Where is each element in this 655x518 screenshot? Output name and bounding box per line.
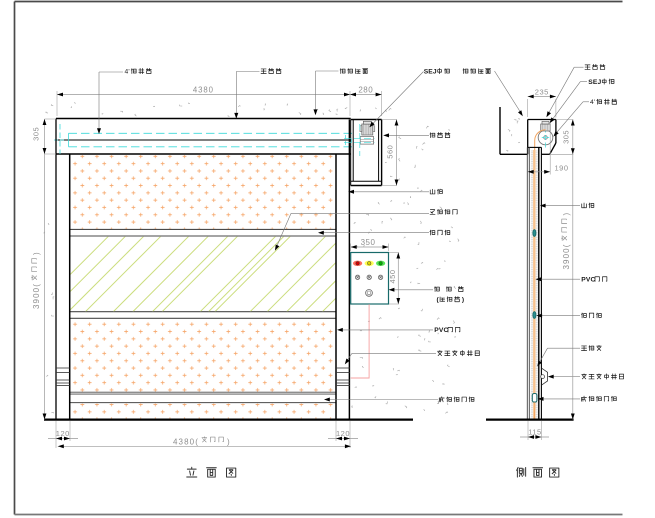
- svg-text:4380(: 4380(: [173, 437, 199, 446]
- svg-text:305: 305: [32, 127, 41, 141]
- svg-text:): ): [32, 252, 41, 255]
- svg-text:560: 560: [386, 145, 395, 159]
- svg-text:120: 120: [336, 429, 350, 438]
- svg-text:235: 235: [535, 87, 549, 96]
- svg-text:): ): [227, 437, 230, 446]
- svg-text:4': 4': [125, 69, 130, 76]
- svg-text:SEJ: SEJ: [424, 69, 437, 76]
- svg-text:280: 280: [358, 85, 373, 94]
- svg-text:PVC: PVC: [434, 327, 448, 334]
- svg-text:305: 305: [561, 130, 570, 144]
- svg-text:3900(: 3900(: [562, 244, 571, 270]
- svg-text:PVC: PVC: [581, 277, 595, 284]
- svg-text:SEJ: SEJ: [588, 79, 601, 86]
- svg-text:3900(: 3900(: [32, 283, 41, 309]
- svg-text:450: 450: [388, 269, 397, 283]
- svg-text:120: 120: [56, 429, 70, 438]
- svg-text:4380: 4380: [193, 86, 214, 95]
- svg-text:350: 350: [361, 238, 376, 247]
- svg-text:4': 4': [590, 99, 595, 106]
- svg-text:190: 190: [554, 164, 568, 173]
- svg-text:): ): [562, 212, 571, 215]
- svg-text:): ): [462, 297, 464, 304]
- svg-text:115: 115: [528, 427, 541, 436]
